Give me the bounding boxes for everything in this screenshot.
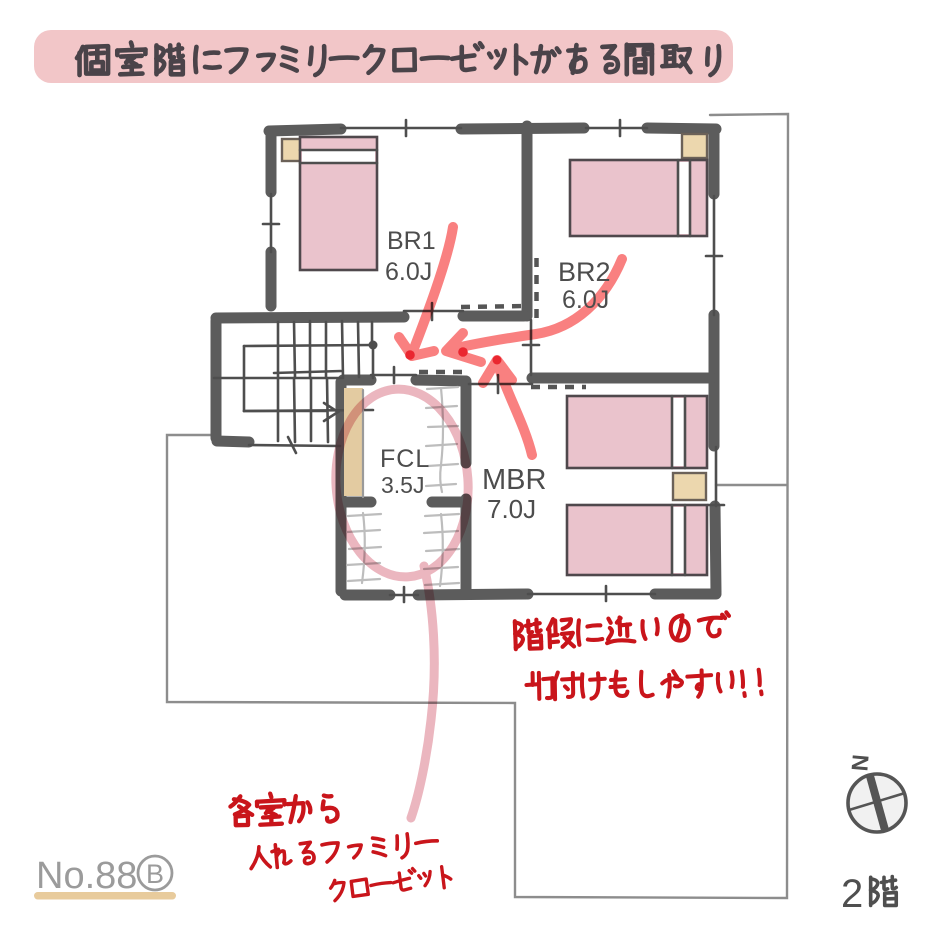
- svg-text:FCL: FCL: [380, 445, 430, 473]
- svg-text:6.0J: 6.0J: [562, 286, 609, 314]
- svg-text:3.5J: 3.5J: [381, 472, 424, 498]
- svg-text:7.0J: 7.0J: [487, 494, 536, 524]
- svg-text:6.0J: 6.0J: [385, 258, 432, 286]
- svg-text:2: 2: [841, 872, 863, 916]
- svg-text:MBR: MBR: [482, 464, 546, 496]
- svg-text:No.88: No.88: [36, 855, 137, 897]
- svg-text:N: N: [846, 753, 873, 772]
- svg-text:B: B: [146, 859, 164, 889]
- svg-text:BR1: BR1: [387, 227, 436, 255]
- svg-text:BR2: BR2: [558, 257, 611, 287]
